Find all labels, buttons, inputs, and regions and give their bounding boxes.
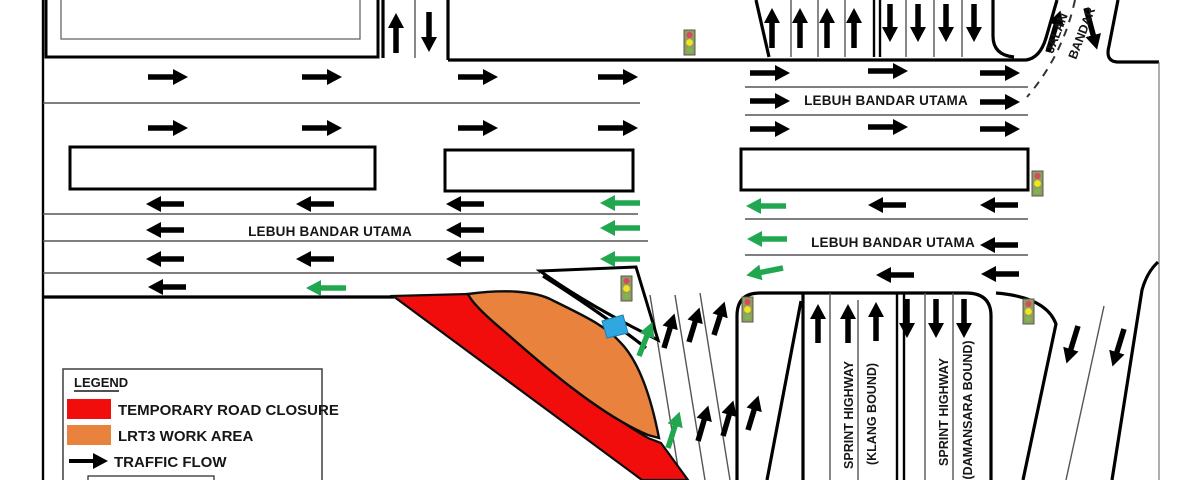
legend-swatch-work-area [67, 425, 111, 445]
traffic-light-icon [684, 30, 695, 55]
traffic-diagram-canvas: LEBUH BANDAR UTAMA LEBUH BANDAR UTAMA LE… [0, 0, 1200, 480]
median-island-center [445, 150, 633, 191]
road-label-sprint-highway-damansara-2: (DAMANSARA BOUND) [961, 340, 975, 479]
legend-title: LEGEND [74, 375, 128, 390]
median-island-east [741, 149, 1028, 190]
median-island-west [70, 147, 375, 189]
traffic-light-icon [1032, 171, 1043, 196]
road-label-sprint-highway-klang-2: (KLANG BOUND) [865, 363, 879, 465]
legend-label-work-area: LRT3 WORK AREA [118, 428, 253, 445]
road-labels: LEBUH BANDAR UTAMA LEBUH BANDAR UTAMA LE… [248, 5, 1098, 479]
traffic-light-icon [1023, 299, 1034, 324]
legend-label-road-closure: TEMPORARY ROAD CLOSURE [118, 402, 339, 419]
road-label-lebuh-bandar-utama-west: LEBUH BANDAR UTAMA [248, 224, 412, 239]
legend-label-traffic-flow: TRAFFIC FLOW [114, 454, 227, 471]
legend-partial-item [88, 476, 214, 480]
road-label-lebuh-bandar-utama-east-upper: LEBUH BANDAR UTAMA [804, 93, 968, 108]
legend-swatch-road-closure [67, 399, 111, 419]
road-label-sprint-highway-klang-1: SPRINT HIGHWAY [842, 360, 856, 469]
road-label-lebuh-bandar-utama-east-lower: LEBUH BANDAR UTAMA [811, 235, 975, 250]
traffic-diagram-page: LEBUH BANDAR UTAMA LEBUH BANDAR UTAMA LE… [0, 0, 1200, 480]
traffic-light-icon [621, 276, 632, 301]
road-label-sprint-highway-damansara-1: SPRINT HIGHWAY [937, 357, 951, 466]
building-block-topleft [46, 0, 378, 57]
legend: LEGEND TEMPORARY ROAD CLOSURE LRT3 WORK … [63, 369, 339, 480]
traffic-light-icon [742, 297, 753, 322]
